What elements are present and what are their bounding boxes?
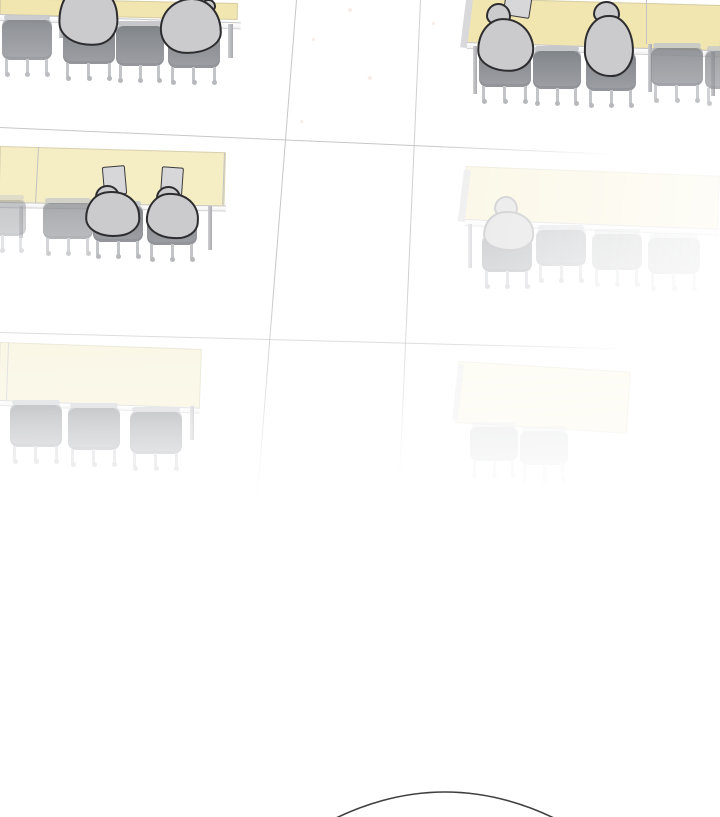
- dust-speck: [432, 22, 435, 25]
- dust-speck: [312, 38, 315, 41]
- dust-speck: [368, 76, 372, 80]
- dust-speck: [300, 120, 303, 123]
- classroom-illustration: [0, 0, 720, 817]
- dust-specks: [0, 0, 720, 817]
- dust-speck: [348, 8, 352, 12]
